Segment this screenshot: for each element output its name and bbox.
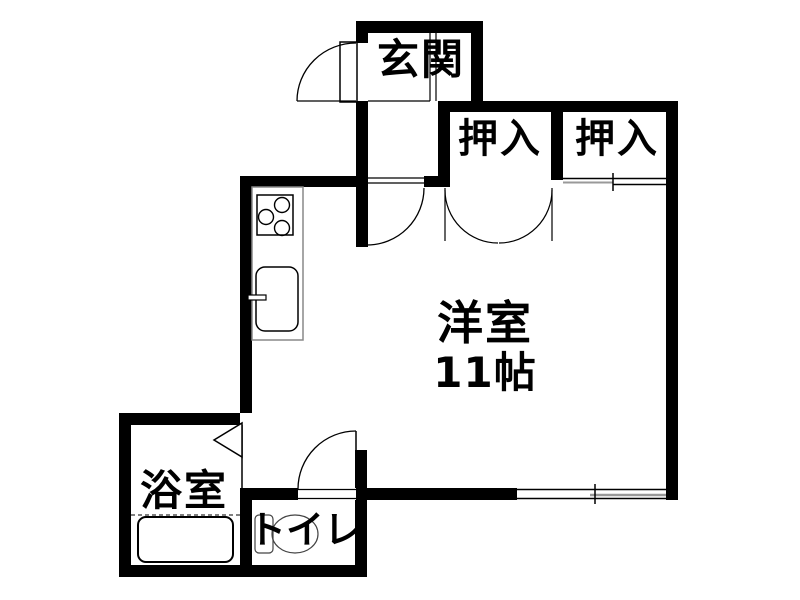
main-room-name: 洋室 — [395, 300, 575, 348]
wall-corridor-stub — [424, 176, 438, 187]
corridor-door — [367, 178, 424, 245]
room-label-closet-right: 押入 — [560, 119, 674, 161]
toilet-door — [298, 431, 356, 500]
wall-outer-right — [666, 101, 678, 500]
toilet-door-swing-arc — [298, 431, 356, 489]
room-label-main-room: 洋室 11帖 — [395, 300, 575, 395]
closet-left-double-door — [445, 188, 552, 243]
wall-kitchen-top — [240, 176, 356, 187]
entrance-door — [297, 42, 357, 102]
closet-door-arc-right — [499, 190, 552, 243]
main-window — [517, 484, 666, 504]
wall-mainroom-bottom — [355, 488, 517, 500]
wall-bath-top — [119, 413, 240, 425]
wall-genkan-left-lower — [356, 101, 368, 247]
corridor-door-swing-arc — [367, 188, 424, 245]
wall-genkan-top — [356, 21, 483, 33]
entrance-door-leaf — [340, 42, 357, 102]
room-label-toilet: トイレ — [247, 511, 363, 551]
kitchen-unit — [248, 187, 303, 340]
bathtub — [138, 517, 233, 562]
room-label-closet-left: 押入 — [443, 119, 557, 161]
sink-faucet — [248, 295, 266, 300]
closet-right-sliding-door — [563, 173, 666, 191]
room-label-bathroom: 浴室 — [128, 469, 240, 513]
floor-plan: 玄関 押入 押入 洋室 11帖 浴室 トイレ — [0, 0, 800, 600]
wall-toilet-top-segment — [240, 488, 298, 500]
closet-door-arc-left — [445, 190, 498, 243]
room-label-genkan: 玄関 — [362, 38, 480, 82]
wall-bottom-outer — [119, 565, 367, 577]
bath-folding-door — [214, 423, 242, 457]
main-room-size: 11帖 — [395, 351, 575, 395]
